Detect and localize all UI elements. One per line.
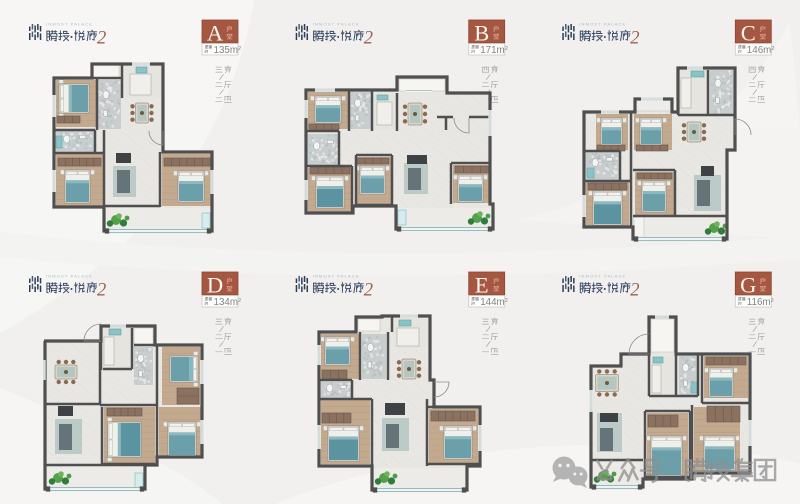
svg-text:D: D [207,273,223,298]
svg-text:A: A [207,21,224,46]
svg-text:2: 2 [364,281,373,301]
svg-text:INMOST PALACE: INMOST PALACE [46,274,93,279]
svg-text:134m2: 134m2 [214,297,242,308]
svg-text:2: 2 [364,29,373,49]
svg-text:171m2: 171m2 [480,45,508,56]
svg-text:INMOST PALACE: INMOST PALACE [579,274,626,279]
svg-text:G: G [740,273,756,298]
svg-text:C: C [741,21,756,46]
svg-text:2: 2 [97,281,106,301]
svg-text:INMOST PALACE: INMOST PALACE [313,274,360,279]
svg-text:INMOST PALACE: INMOST PALACE [313,22,360,27]
svg-text:E: E [475,273,489,298]
svg-text:2: 2 [97,29,106,49]
svg-text:146m2: 146m2 [747,45,775,56]
svg-text:144m2: 144m2 [480,297,508,308]
svg-text:INMOST PALACE: INMOST PALACE [46,22,93,27]
svg-text:2: 2 [630,29,639,49]
svg-text:116m2: 116m2 [747,297,774,308]
svg-text:B: B [474,21,489,46]
svg-text:135m2: 135m2 [214,45,242,56]
svg-text:2: 2 [630,281,639,301]
svg-text:INMOST PALACE: INMOST PALACE [579,22,626,27]
